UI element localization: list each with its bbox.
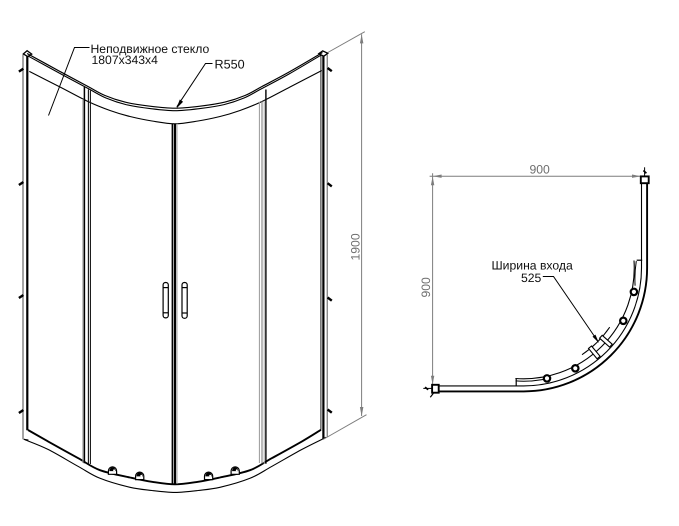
svg-text:R550: R550	[215, 57, 245, 71]
svg-text:900: 900	[530, 162, 551, 176]
svg-text:900: 900	[419, 277, 433, 298]
svg-text:1807х343х4: 1807х343х4	[92, 53, 159, 67]
svg-text:1900: 1900	[349, 233, 363, 260]
svg-text:525: 525	[521, 271, 542, 285]
